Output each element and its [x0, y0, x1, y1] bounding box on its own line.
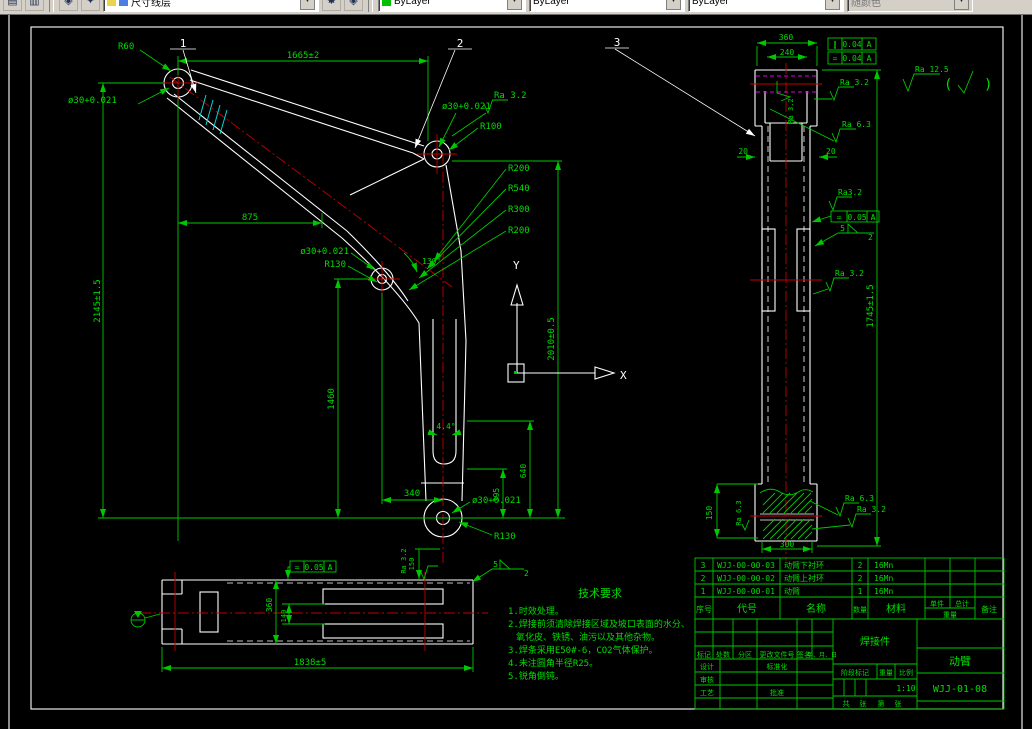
right-view-dimensions: 360 240 ∥ 0.04 A = 0.04 A Ra 12.5 ( ) Ra…	[705, 33, 992, 553]
bom-header: 备注	[981, 604, 997, 614]
dim-angle-leg: 4.4°	[436, 422, 455, 431]
title-block: 焊接件 动臂 WJJ-01-08 标记 处数 分区 更改文件号 签名 年、月、日…	[695, 619, 1004, 709]
linetype-value: ByLayer	[533, 0, 570, 7]
dim-right-height: 2010±0.5	[547, 317, 557, 360]
tech-req-line: 1.时效处理。	[508, 605, 564, 617]
tb-sheet: 张	[860, 699, 867, 708]
color-dropdown-icon[interactable]: ▼	[507, 0, 522, 10]
layer-dropdown-icon[interactable]: ▼	[300, 0, 315, 10]
linetype-dropdown-icon[interactable]: ▼	[666, 0, 681, 10]
toolbar-separator	[368, 0, 373, 12]
bom-header: 重量	[943, 611, 957, 619]
ra-mid: Ra3.2	[838, 188, 862, 197]
weld-symbol-section: 5 2	[472, 560, 529, 582]
tb-col: 分区	[738, 650, 752, 659]
bom-cell: WJJ-00-00-03	[717, 561, 775, 570]
make-current-icon[interactable]: ✸	[322, 0, 341, 11]
bom-header: 序号	[696, 604, 712, 614]
fcf-s-datum: A	[328, 563, 333, 572]
balloon-3: 3	[614, 36, 621, 49]
tb-col: 处数	[716, 650, 730, 659]
fcf1-symbol: ∥	[833, 40, 837, 49]
right-view-centerlines	[750, 63, 822, 561]
fcf2-symbol: =	[833, 54, 838, 63]
tech-req-line: 5.锐角倒钝。	[508, 670, 564, 682]
fcf3-value: 0.05	[847, 213, 866, 222]
fcf2-value: 0.04	[842, 54, 861, 63]
ra-e: Ra 6.3	[845, 494, 874, 503]
fcf1-datum: A	[867, 40, 872, 49]
tb-part-name: 动臂	[949, 655, 971, 668]
ra-section: Ra 3.2	[400, 548, 408, 573]
color-swatch-icon	[382, 0, 391, 6]
tb-sheet: 共	[843, 699, 850, 708]
tb-role: 标准化	[767, 662, 788, 671]
mid-hole: ø30+0.021	[300, 247, 349, 257]
bom-header: 代号	[737, 603, 757, 615]
layer-combo[interactable]: 尺寸线层 ▼	[103, 0, 319, 12]
tech-req-line: 氧化皮、铁锈、油污以及其他杂物。	[516, 631, 660, 643]
bom-cell: 2	[858, 574, 863, 583]
bom-header: 数量	[853, 605, 867, 614]
hub1-radius: R60	[118, 42, 134, 52]
bom-table: 3 WJJ-00-00-03 动臂下衬环 2 16Mn 2 WJJ-00-00-…	[695, 558, 1004, 619]
bom-cell: 动臂	[784, 586, 800, 596]
paren-close: )	[984, 77, 992, 93]
weld-seam-marks	[199, 95, 227, 134]
dim-leg-height: 1460	[327, 388, 337, 410]
balloon-2: 2	[457, 37, 464, 50]
main-view-callouts: R60 ø30+0.021 ø30+0.021 Ra 3.2 R100 R200…	[68, 42, 530, 542]
ra-a: Ra 3.2	[840, 78, 869, 87]
dim-side-left: 20	[738, 147, 748, 156]
main-view-outline	[164, 69, 466, 537]
linetype-combo[interactable]: ByLayer ▼	[529, 0, 685, 12]
section-view-dimensions: = 0.05 A 360 140 1838±5 150 Ra 3.2 5 2	[131, 548, 529, 672]
prev-layer-icon[interactable]: ◈	[344, 0, 363, 11]
dim-top-width: 1665±2	[287, 51, 320, 61]
tb-sheet: 第	[878, 699, 885, 708]
weld-symbol-right: 5 2	[815, 224, 874, 246]
tb-role: 审核	[700, 675, 714, 684]
dim-width-inner: 240	[780, 48, 795, 57]
layers-dialog-icon[interactable]: ◈	[59, 0, 78, 11]
plotstyle-value: 随颜色	[851, 0, 881, 9]
drawing-canvas[interactable]: 1665±2 875 2145±1.5 2010±0.5 1460 395 64…	[0, 15, 1032, 729]
bom-cell: WJJ-00-00-01	[717, 587, 775, 596]
dim-side-right: 20	[826, 147, 836, 156]
hub2-hole: ø30+0.021	[442, 102, 491, 112]
dim-mid-width: 875	[242, 213, 258, 223]
layer-state-icon[interactable]: ✦	[81, 0, 100, 11]
fcf-section: = 0.05 A	[288, 561, 336, 579]
radius-r4: R200	[508, 226, 530, 236]
lineweight-combo[interactable]: ByLayer ▼	[688, 0, 844, 12]
bom-cell: 动臂下衬环	[784, 560, 824, 570]
tech-req-line: 3.焊条采用E50#-6，CO2气体保护。	[508, 644, 658, 656]
bottom-hole: ø30+0.021	[472, 496, 521, 506]
weld-count: 2	[868, 233, 873, 242]
tb-role: 设计	[700, 662, 714, 671]
dim-left-height: 2145±1.5	[93, 279, 103, 322]
radius-r3: R300	[508, 205, 530, 215]
dim-sv-inner: 140	[280, 610, 288, 623]
balloon-1: 1	[180, 37, 187, 50]
ucs-icon: Y X	[508, 259, 627, 382]
toolbar-icon-a[interactable]: ▤	[3, 0, 22, 11]
ra-d: Ra 6.3	[735, 500, 743, 525]
plotstyle-combo[interactable]: 随颜色 ▼	[847, 0, 973, 12]
bom-cell: 2	[701, 574, 706, 583]
layer-lock-icon	[119, 0, 128, 6]
bom-header: 单件	[930, 599, 944, 608]
dim-rv-bottom-height: 150	[705, 506, 714, 521]
weld-size: 5	[840, 224, 845, 233]
section-view-outline	[162, 580, 473, 644]
hub1-hole: ø30+0.021	[68, 96, 117, 106]
tb-weight: 重量	[879, 669, 893, 677]
lineweight-dropdown-icon[interactable]: ▼	[825, 0, 840, 10]
paren-open: (	[944, 77, 952, 93]
fcf-s-value: 0.05	[304, 563, 323, 572]
ra-c: Ra 3.2	[835, 269, 864, 278]
color-combo[interactable]: ByLayer ▼	[378, 0, 526, 12]
bom-header: 名称	[806, 602, 826, 615]
bottom-radius: R130	[494, 532, 516, 542]
fcf1-value: 0.04	[842, 40, 861, 49]
bom-cell: 16Mn	[874, 587, 893, 596]
radius-r1: R200	[508, 164, 530, 174]
plotstyle-dropdown-icon[interactable]: ▼	[954, 0, 969, 10]
tb-sheet: 张	[895, 699, 902, 708]
bom-cell: 16Mn	[874, 574, 893, 583]
fcf-symmetry: = 0.04 A	[828, 52, 876, 64]
bom-header: 材料	[886, 602, 906, 615]
bom-cell: 1	[858, 587, 863, 596]
fcf3-symbol: =	[837, 213, 842, 222]
tb-scale-value: 1:10	[896, 684, 915, 693]
weld-s-size: 5	[493, 560, 498, 569]
tb-role: 批准	[770, 688, 784, 697]
tech-req-line: 4.未注圆角半径R25。	[508, 657, 598, 669]
bom-cell: 2	[858, 561, 863, 570]
ra-cap: Ra 3.2	[787, 98, 795, 123]
bom-cell: 动臂上衬环	[784, 573, 824, 583]
bom-cell: WJJ-00-00-02	[717, 574, 775, 583]
dim-rv-height: 1745±1.5	[866, 284, 876, 327]
ra-b: Ra 6.3	[842, 120, 871, 129]
hub2-ra: Ra 3.2	[494, 91, 527, 101]
color-value: ByLayer	[394, 0, 431, 7]
tb-stage: 阶段标记	[841, 668, 869, 677]
toolbar-icon-b[interactable]: ▥	[25, 0, 44, 11]
hub2-radius: R100	[480, 122, 502, 132]
general-ra: Ra 12.5	[915, 65, 949, 74]
radius-r2: R540	[508, 184, 530, 194]
dim-bottom-width: 340	[404, 489, 420, 499]
tech-req-title: 技术要求	[578, 587, 622, 600]
fcf-symmetry-2: = 0.05 A	[831, 211, 879, 222]
dim-sv-height: 360	[265, 598, 274, 613]
fcf2-datum: A	[867, 54, 872, 63]
bom-header: 总计	[955, 599, 969, 608]
tb-col: 年、月、日	[807, 651, 837, 659]
layer-name: 尺寸线层	[131, 0, 171, 9]
dim-sv-end: 150	[408, 558, 416, 571]
bom-cell: 16Mn	[874, 561, 893, 570]
tb-type: 焊接件	[860, 635, 890, 648]
tb-role: 工艺	[700, 689, 714, 697]
fcf-parallel: ∥ 0.04 A	[828, 38, 876, 50]
fcf3-datum: A	[871, 213, 876, 222]
dim-b: 640	[519, 464, 528, 479]
ucs-y-label: Y	[513, 259, 520, 272]
mid-radius: R130	[324, 260, 346, 270]
general-roughness: Ra 12.5 ( )	[903, 65, 992, 93]
dim-width-top: 360	[779, 33, 794, 42]
tech-requirements: 技术要求 1.时效处理。 2.焊接前须清除焊接区域及坡口表面的水分、 氧化皮、铁…	[508, 587, 690, 682]
tb-drawing-number: WJJ-01-08	[933, 684, 987, 695]
weld-s-count: 2	[524, 569, 529, 578]
bom-cell: 3	[701, 561, 706, 570]
tb-scale: 比例	[899, 668, 913, 677]
section-view-centerlines	[140, 572, 488, 651]
lineweight-value: ByLayer	[692, 0, 729, 7]
tech-req-line: 2.焊接前须清除焊接区域及坡口表面的水分、	[508, 618, 690, 630]
toolbar-separator	[49, 0, 54, 12]
layer-bulb-icon	[107, 0, 116, 6]
dim-rv-bottom-width: 300	[780, 540, 795, 549]
bom-cell: 1	[701, 587, 706, 596]
toolbar: ▤ ▥ ◈ ✦ 尺寸线层 ▼ ✸ ◈ ByLayer ▼ ByLayer ▼ B…	[0, 0, 1032, 15]
fcf-s-symbol: =	[295, 563, 300, 572]
ucs-x-label: X	[620, 369, 627, 382]
ra-f: Ra 3.2	[857, 505, 886, 514]
tb-col: 更改文件号	[760, 650, 795, 659]
dim-sv-length: 1838±5	[294, 658, 327, 668]
tb-col: 标记	[697, 650, 711, 659]
